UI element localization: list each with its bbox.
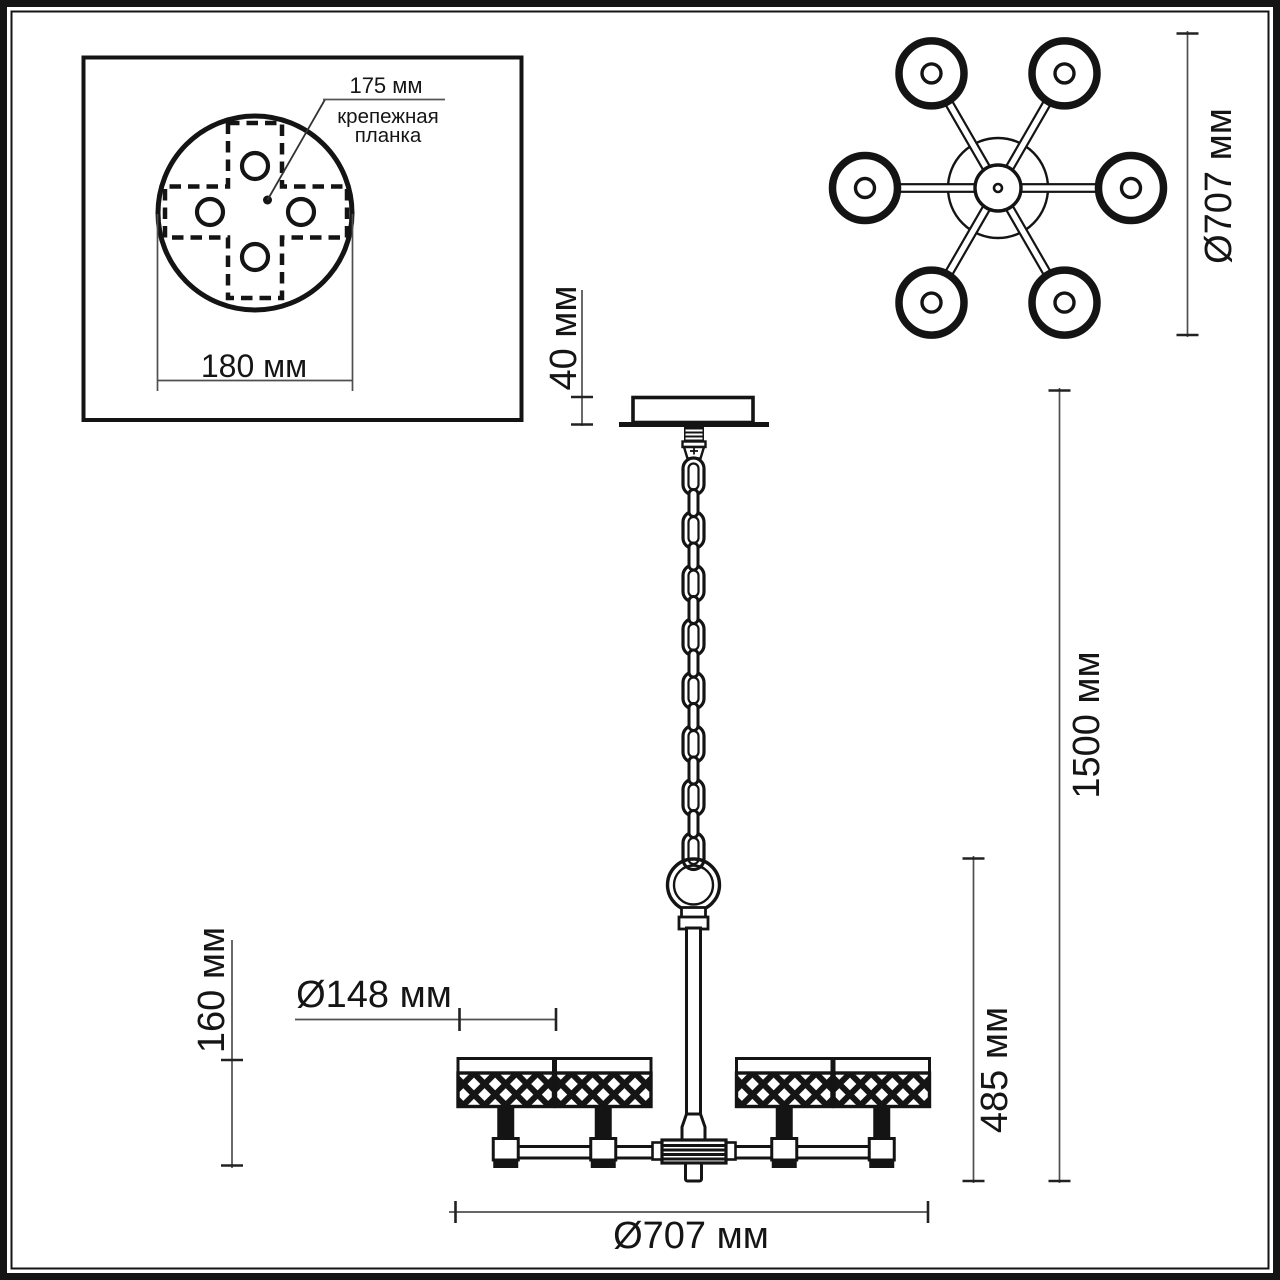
top-view-hub-center [994,184,1002,192]
chain-connector [683,427,706,459]
dim-label-plate-width: 180 мм [201,348,307,384]
dim-label-fixture-diameter: Ø707 мм [613,1215,769,1257]
dim-label-top-diameter: Ø707 мм [1198,108,1240,264]
dim-label-suspension-height: 1500 мм [1066,651,1108,798]
center-stem [687,928,701,1115]
mounting-plate-circle [158,116,352,310]
canopy [633,398,753,423]
label-bracket-line2: планка [355,124,422,147]
dim-label-shade-height: 160 мм [191,927,233,1053]
label-plate-pitch: 175 мм [349,73,422,98]
dim-label-body-height: 485 мм [974,1007,1016,1133]
dim-label-canopy-height: 40 мм [543,285,585,390]
spec-sheet-page: 175 мм крепежная планка 180 мм [0,0,1280,1280]
dim-label-shade-diameter: Ø148 мм [296,974,452,1016]
chandelier-technical-drawing: 175 мм крепежная планка 180 мм [0,0,1280,1280]
hub-finial [686,1163,702,1181]
stem-base [682,1114,705,1140]
